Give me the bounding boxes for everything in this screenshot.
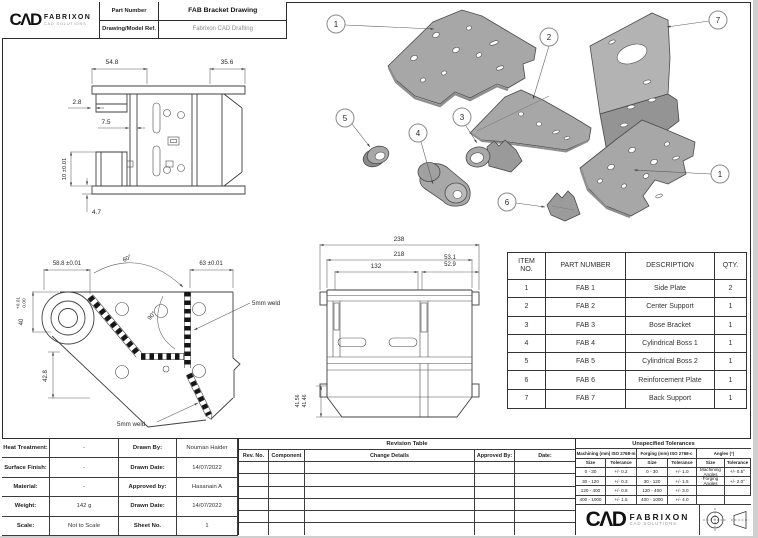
bom-qty: 1: [715, 335, 746, 353]
dim-side-top-left: 54.8: [106, 59, 119, 66]
balloon-back-support: 7: [716, 16, 721, 25]
tol-tolerance-label: Tolerance: [668, 459, 697, 468]
tol-value: +/- 3.0: [668, 486, 697, 495]
part-cyl-boss-1: [418, 163, 470, 207]
revision-empty-row: [239, 523, 575, 535]
tol-size-label: Size: [697, 459, 725, 468]
dim-detail-width: 58.8 ±0.01: [53, 261, 82, 267]
tol-forging-header: Forging (mm) ISO 2768-c: [637, 449, 697, 459]
dim-front-slot-span: 132: [371, 263, 382, 270]
tol-value: 400 - 1000: [576, 496, 606, 505]
footer-logo: CΛD FABRIXON CAD SOLUTIONS: [576, 505, 699, 535]
info-value: -: [50, 478, 119, 497]
front-view: 238 218 132 53.1 52.9 41.56 41.46: [295, 236, 479, 417]
tol-value: +/- 0.3: [606, 477, 637, 486]
info-label: Surface Finish:: [2, 458, 50, 477]
exploded-view: [361, 10, 695, 221]
bom-part: FAB 7: [546, 390, 626, 408]
tol-value: 30 - 120: [576, 477, 606, 486]
info-value: -: [50, 458, 119, 477]
drawing-sheet: 54.8 35.6 2.8 7.5 10 ±0.01 4.7: [0, 0, 758, 538]
tol-value: +/- 0.8: [606, 486, 637, 495]
weld-note-right: 5mm weld: [252, 300, 281, 307]
bom-item: 5: [508, 353, 546, 371]
dim-detail-lower: 42.8: [43, 370, 49, 382]
bom-desc: Cylindrical Boss 2: [626, 353, 715, 371]
tol-empty: [697, 486, 725, 495]
bom-part: FAB 4: [546, 335, 626, 353]
balloon-bose-bracket: 3: [460, 113, 465, 122]
bom-qty: 1: [715, 390, 746, 408]
dim-front-skirt-outer: 41.56: [295, 394, 301, 407]
part-number-label: Part Number: [100, 2, 159, 21]
bom-desc: Cylindrical Boss 1: [626, 335, 715, 353]
tol-value: Forging Angles: [697, 477, 725, 486]
bom-desc: Back Support: [626, 390, 715, 408]
footer-logo-row: CΛD FABRIXON CAD SOLUTIONS: [576, 505, 751, 535]
dim-detail-height-tol-low: 0.00: [22, 298, 28, 308]
cad-logo-mark: CΛD: [9, 10, 40, 30]
dim-front-right-top: 53.1: [444, 255, 456, 261]
bottom-strip: Heat Treatment: - Drawn By: Nouman Haide…: [2, 438, 751, 535]
tol-value: +/- 4.0: [668, 496, 697, 505]
dim-side-plate: 7.5: [101, 119, 110, 126]
dim-front-right-bottom: 52.9: [444, 262, 456, 268]
revision-empty-row: [239, 499, 575, 511]
info-label: Sheet No.: [119, 517, 177, 536]
company-logo: CΛD FABRIXON CAD SOLUTIONS: [2, 2, 100, 38]
col-header-item: ITEM NO.: [508, 253, 546, 280]
tol-value: 0 - 30: [637, 468, 668, 477]
projection-symbol: [699, 505, 751, 535]
model-ref-label: Drawing/Model Ref.: [100, 21, 159, 39]
dim-front-skirt-inner: 41.46: [302, 394, 308, 407]
cad-logo-mark: CΛD: [586, 508, 626, 532]
info-label: Drawn Date:: [119, 458, 177, 477]
tol-value: Machining Angles: [697, 468, 725, 477]
revision-table: Revision Table Rev. No. Component Change…: [238, 439, 575, 535]
weld-seams: [87, 292, 212, 420]
rev-col-header: Rev. No.: [239, 450, 269, 462]
tol-value: 400 - 1000: [637, 496, 668, 505]
info-value: 14/07/2022: [177, 497, 238, 516]
revision-empty-row: [239, 511, 575, 523]
tol-value: 120 - 400: [576, 486, 606, 495]
dim-detail-height-tol-up: +0.01: [16, 297, 22, 309]
tol-value: +/- 0.2: [606, 468, 637, 477]
scan-edge-right: [753, 0, 758, 538]
bom-desc: Side Plate: [626, 280, 715, 298]
bom-part: FAB 5: [546, 353, 626, 371]
info-label: Weight:: [2, 497, 50, 516]
bom-qty: 2: [715, 280, 746, 298]
tol-tolerance-label: Tolerance: [725, 459, 751, 468]
bom-desc: Reinforcement Plate: [626, 371, 715, 389]
detail-weld-view: 58.8 ±0.01 +0.01 0.00 40 63 ±0.01 60° 90…: [16, 254, 281, 428]
rev-col-header: Date:: [515, 450, 575, 462]
weld-note-bottom: 5mm weld: [117, 421, 146, 428]
bom-part: FAB 1: [546, 280, 626, 298]
bom-part: FAB 6: [546, 371, 626, 389]
info-block: Heat Treatment: - Drawn By: Nouman Haide…: [2, 439, 238, 535]
balloon-center-support: 2: [547, 33, 552, 42]
part-reinforcement-plate: [547, 191, 580, 221]
bom-qty: 1: [715, 353, 746, 371]
info-label: Material:: [2, 478, 50, 497]
info-value: Not to Scale: [50, 517, 119, 536]
col-header-desc: DESCRIPTION: [626, 253, 715, 280]
dim-detail-right: 63 ±0.01: [199, 261, 223, 267]
part-center-support: [470, 90, 591, 152]
tol-value: +/- 0.5°: [725, 468, 751, 477]
info-value: 142 g: [50, 497, 119, 516]
balloon-side-plate-right: 1: [718, 170, 723, 179]
info-label: Drawn By:: [119, 439, 177, 458]
tol-value: 120 - 400: [637, 486, 668, 495]
info-value: Nouman Haider: [177, 439, 238, 458]
title-block: CΛD FABRIXON CAD SOLUTIONS Part Number D…: [2, 2, 287, 39]
revision-empty-row: [239, 487, 575, 499]
dim-detail-angle-top: 60°: [122, 254, 133, 264]
bom-desc: Bose Bracket: [626, 317, 715, 335]
info-value: Hasanain A: [177, 478, 238, 497]
info-label: Scale:: [2, 517, 50, 536]
revision-empty-row: [239, 462, 575, 474]
tol-tolerance-label: Tolerance: [606, 459, 637, 468]
dim-detail-angle-mid: 90°: [147, 311, 158, 322]
col-header-qty: QTY.: [715, 253, 746, 280]
bom-item: 7: [508, 390, 546, 408]
part-number-value: FAB Bracket Drawing: [159, 2, 286, 21]
model-ref-value: Fabrixon CAD Drafting: [159, 21, 286, 39]
dim-side-boss: 10 ±0.01: [62, 158, 68, 181]
brand-subtitle: CAD SOLUTIONS: [44, 22, 91, 26]
tol-value: 30 - 120: [637, 477, 668, 486]
side-view: 54.8 35.6 2.8 7.5 10 ±0.01 4.7: [62, 59, 245, 216]
tol-empty: [725, 496, 751, 505]
tolerances-block: Unspecified Tolerances Machining (mm) IS…: [575, 439, 751, 535]
bom-item: 6: [508, 371, 546, 389]
third-angle-projection-icon: [701, 506, 751, 534]
info-label: Drawn Date:: [119, 497, 177, 516]
dim-side-step: 2.8: [72, 99, 81, 106]
bom-qty: 1: [715, 298, 746, 316]
tol-value: +/- 1.5: [606, 496, 637, 505]
bom-part: FAB 2: [546, 298, 626, 316]
rev-col-header: Component: [269, 450, 305, 462]
tol-size-label: Size: [576, 459, 606, 468]
bom-item: 1: [508, 280, 546, 298]
tol-machining-header: Machining (mm) ISO 2768-m: [576, 449, 637, 459]
tol-value: +/- 1.5: [668, 477, 697, 486]
part-cyl-boss-2: [361, 144, 391, 170]
dim-front-inner: 218: [394, 251, 405, 258]
part-side-plate-top: [388, 10, 536, 106]
revision-empty-row: [239, 474, 575, 486]
tol-value: +/- 2.0°: [725, 477, 751, 486]
bom-part: FAB 3: [546, 317, 626, 335]
bom-item: 2: [508, 298, 546, 316]
balloon-reinforcement: 6: [505, 198, 510, 207]
tol-size-label: Size: [637, 459, 668, 468]
tol-angles-header: Angles (°): [697, 449, 751, 459]
brand-name: FABRIXON: [44, 14, 91, 22]
info-label: Approved by:: [119, 478, 177, 497]
bom-desc: Center Support: [626, 298, 715, 316]
info-value: 1: [177, 517, 238, 536]
bom-item: 4: [508, 335, 546, 353]
revision-table-title: Revision Table: [239, 439, 575, 450]
tol-value: +/- 1.0: [668, 468, 697, 477]
dim-side-top-right: 35.6: [221, 59, 234, 66]
bom-qty: 1: [715, 371, 746, 389]
dim-side-flange: 4.7: [92, 209, 101, 216]
parts-table: ITEM NO. PART NUMBER DESCRIPTION QTY. 1 …: [507, 252, 747, 409]
balloon-cyl-boss-2: 5: [343, 114, 348, 123]
tol-value: 0 - 30: [576, 468, 606, 477]
balloon-side-plate-top: 1: [334, 20, 339, 29]
info-value: 14/07/2022: [177, 458, 238, 477]
part-side-plate-right: [580, 120, 695, 217]
bom-item: 3: [508, 317, 546, 335]
tolerances-title: Unspecified Tolerances: [576, 439, 751, 449]
dim-detail-height: 40: [19, 318, 25, 325]
tol-empty: [697, 496, 725, 505]
info-value: -: [50, 439, 119, 458]
bom-qty: 1: [715, 317, 746, 335]
tol-empty: [725, 486, 751, 495]
brand-subtitle: CAD SOLUTIONS: [629, 522, 689, 527]
balloon-cyl-boss-1: 4: [416, 129, 421, 138]
rev-col-header: Change Details: [305, 450, 475, 462]
rev-col-header: Approved By:: [475, 450, 515, 462]
col-header-part: PART NUMBER: [546, 253, 626, 280]
dim-front-overall: 238: [394, 236, 405, 243]
info-label: Heat Treatment:: [2, 439, 50, 458]
